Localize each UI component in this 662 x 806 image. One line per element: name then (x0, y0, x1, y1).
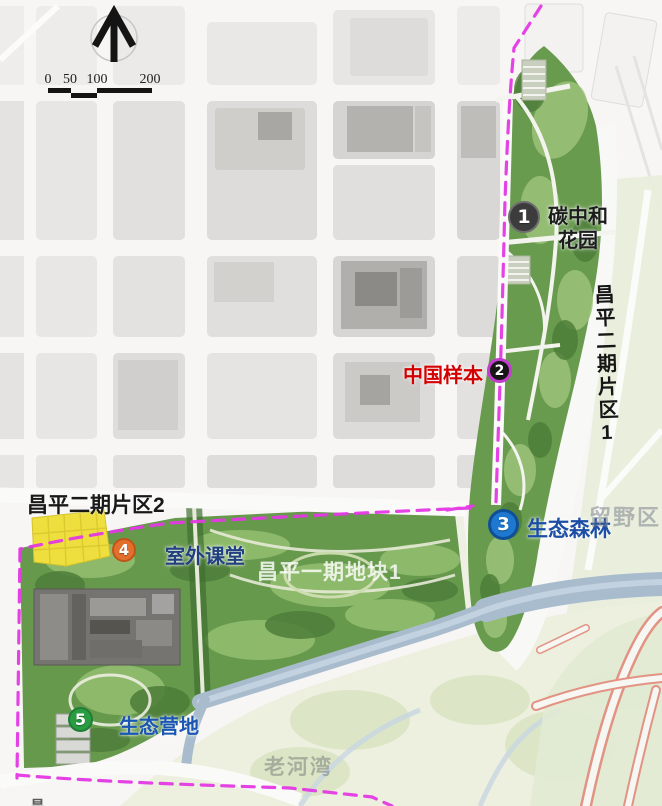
scale-tick-200: 200 (140, 72, 161, 87)
planned-roads-southeast (530, 612, 662, 806)
marker-5-badge: 5 (68, 707, 93, 732)
industrial-complex (34, 589, 180, 665)
label-changping-phase1-block1: 昌平一期地块1 (257, 556, 402, 586)
marker-4-badge: 4 (112, 538, 136, 562)
map-artwork: 0 50 100 200 (0, 0, 662, 806)
marker-3-badge: 3 (488, 509, 519, 540)
scale-tick-100: 100 (87, 72, 108, 87)
label-old-river-bay: 老河湾 (264, 751, 333, 781)
marker-1-badge: 1 (508, 201, 540, 233)
site-plan: 0 50 100 200 1 2 3 4 5 碳中和 花园 中国样本 生态森林 … (0, 0, 662, 806)
marker-2-badge: 2 (487, 358, 512, 383)
label-china-sample: 中国样本 (391, 359, 483, 388)
label-eco-camp: 生态营地 (119, 710, 199, 739)
scale-tick-0: 0 (45, 72, 52, 87)
label-corner-partial: 昌 (30, 795, 45, 806)
label-outdoor-classroom: 室外课堂 (165, 540, 245, 569)
label-changping-phase2-area2: 昌平二期片区2 (27, 489, 165, 519)
scale-tick-50: 50 (63, 72, 77, 87)
label-wild-area: 留野区 (589, 500, 661, 532)
label-carbon-neutral-garden: 碳中和 花园 (544, 205, 612, 253)
